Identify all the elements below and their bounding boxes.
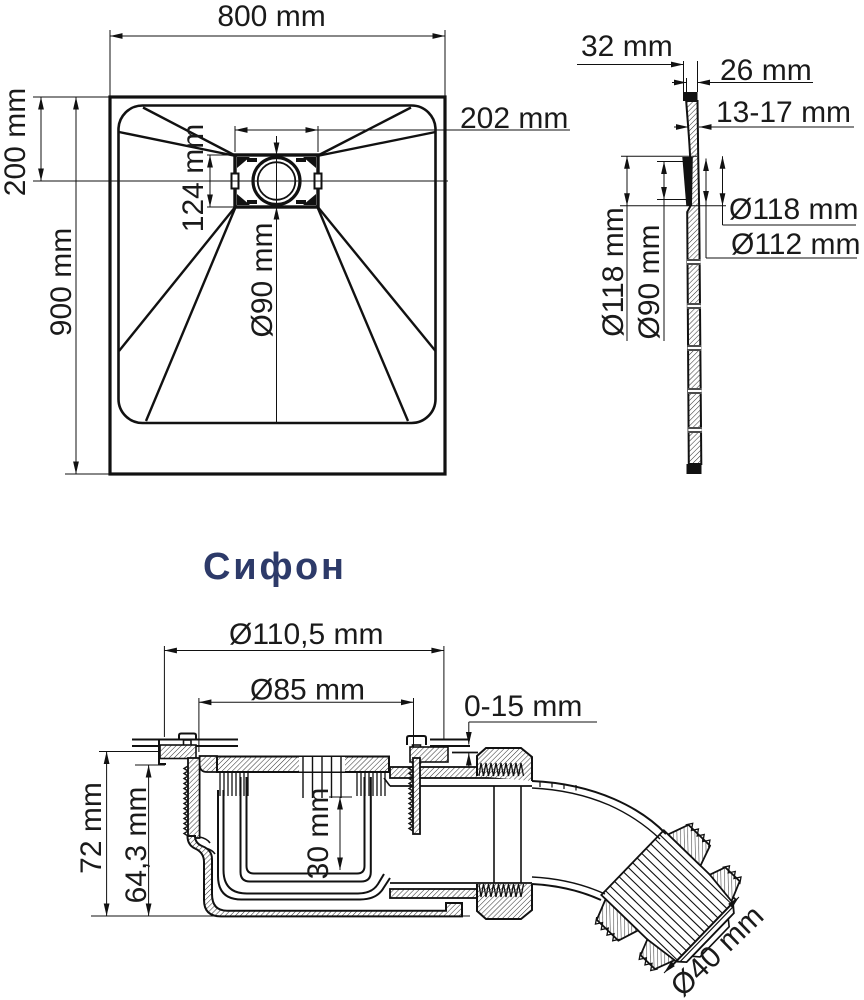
- svg-text:32 mm: 32 mm: [581, 30, 673, 63]
- svg-text:Ø90 mm: Ø90 mm: [246, 222, 279, 337]
- svg-text:Ø118 mm: Ø118 mm: [597, 207, 630, 336]
- svg-text:Ø85 mm: Ø85 mm: [250, 674, 365, 707]
- svg-text:0-15 mm: 0-15 mm: [464, 690, 582, 723]
- svg-text:64,3 mm: 64,3 mm: [120, 787, 153, 904]
- svg-text:Ø112 mm: Ø112 mm: [731, 228, 860, 261]
- svg-text:30 mm: 30 mm: [302, 788, 335, 880]
- svg-text:Ø40 mm: Ø40 mm: [665, 899, 771, 1000]
- svg-text:202 mm: 202 mm: [460, 102, 568, 135]
- svg-text:13-17 mm: 13-17 mm: [716, 96, 851, 129]
- svg-text:72 mm: 72 mm: [75, 782, 108, 874]
- svg-text:200 mm: 200 mm: [0, 88, 32, 196]
- svg-text:Ø90 mm: Ø90 mm: [633, 224, 666, 339]
- svg-text:Ø118 mm: Ø118 mm: [729, 193, 858, 226]
- svg-text:Сифон: Сифон: [203, 546, 347, 588]
- svg-text:900 mm: 900 mm: [45, 228, 78, 336]
- svg-text:Ø110,5 mm: Ø110,5 mm: [229, 618, 384, 651]
- svg-text:26 mm: 26 mm: [720, 54, 812, 87]
- svg-text:800 mm: 800 mm: [217, 0, 325, 33]
- svg-text:124 mm: 124 mm: [177, 124, 210, 232]
